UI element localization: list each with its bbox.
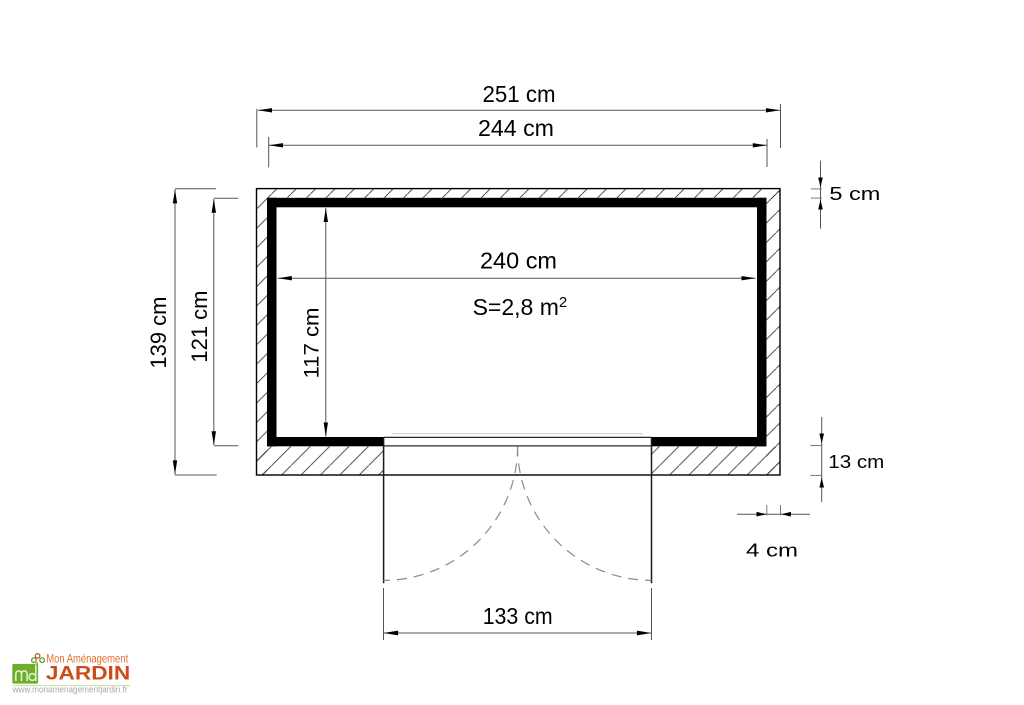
svg-text:139 cm: 139 cm bbox=[146, 297, 171, 369]
svg-text:4 cm: 4 cm bbox=[746, 540, 798, 561]
svg-text:www.monamenagementjardin.fr: www.monamenagementjardin.fr bbox=[12, 685, 128, 695]
svg-text:5 cm: 5 cm bbox=[829, 183, 880, 204]
svg-text:S=2,8 m2: S=2,8 m2 bbox=[473, 294, 568, 320]
svg-text:240 cm: 240 cm bbox=[480, 248, 557, 274]
svg-text:117 cm: 117 cm bbox=[301, 308, 324, 379]
svg-text:244 cm: 244 cm bbox=[478, 115, 554, 141]
svg-text:JARDIN: JARDIN bbox=[46, 664, 130, 685]
svg-text:121 cm: 121 cm bbox=[187, 291, 212, 363]
svg-text:251 cm: 251 cm bbox=[483, 81, 556, 107]
svg-text:133 cm: 133 cm bbox=[483, 603, 553, 629]
svg-text:13 cm: 13 cm bbox=[828, 451, 884, 472]
